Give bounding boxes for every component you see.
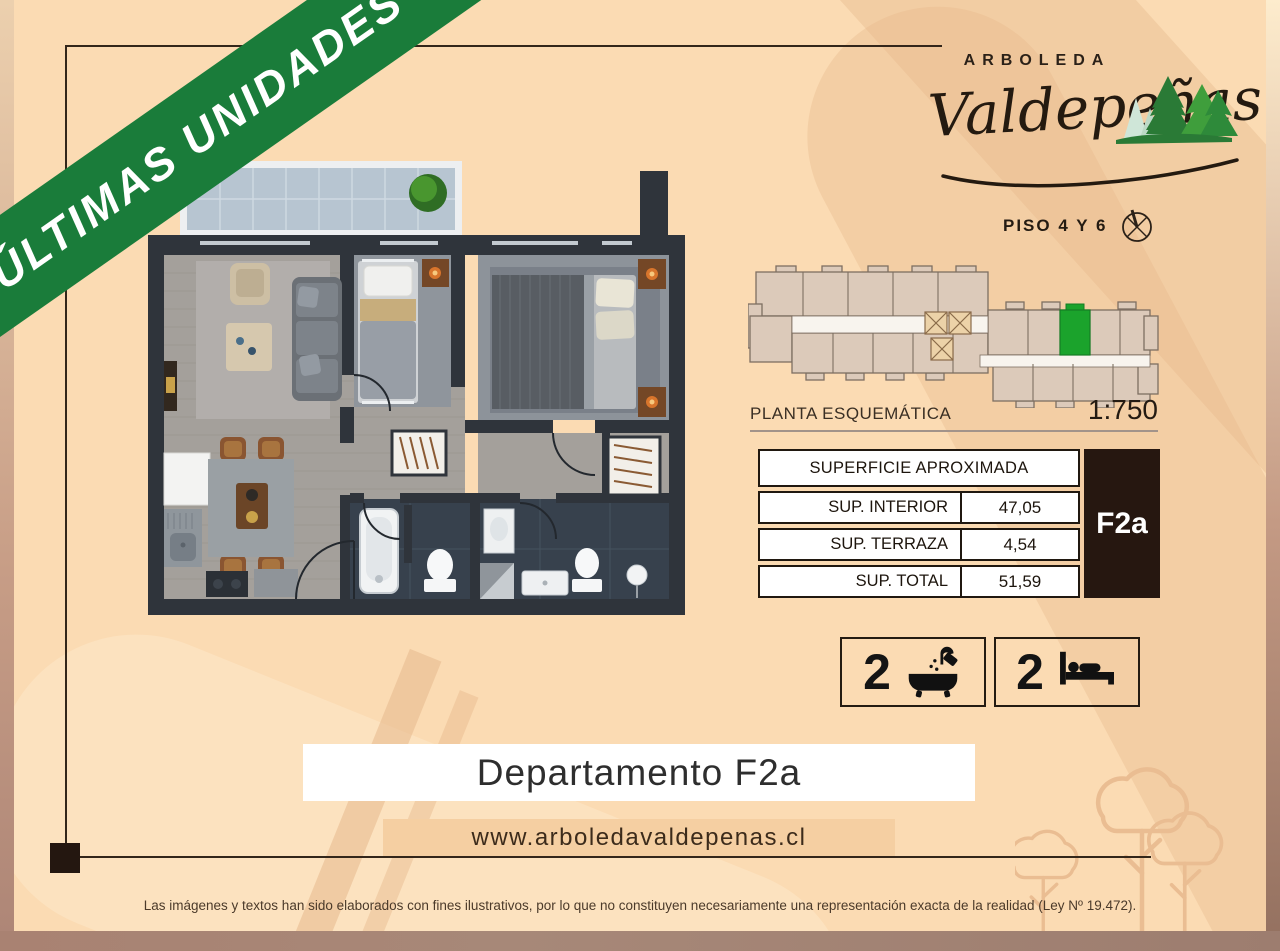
schematic-scale: 1:750 [1030,394,1158,426]
bedrooms-feature: 2 [994,637,1140,707]
schematic-label: PLANTA ESQUEMÁTICA [750,404,951,424]
row-value: 47,05 [962,493,1078,522]
table-row: SUP. TERRAZA 4,54 [758,528,1080,561]
row-label: SUP. TERRAZA [760,530,962,559]
disclaimer-text: Las imágenes y textos han sido elaborado… [0,898,1280,913]
frame-line-left [65,45,67,845]
schematic-highlighted-unit [1060,304,1090,355]
row-value: 51,59 [962,567,1078,596]
frame-line-top [65,45,942,47]
table-row: SUP. INTERIOR 47,05 [758,491,1080,524]
bathroom-count: 2 [863,647,891,697]
frame-corner-square [50,843,80,873]
area-table: SUPERFICIE APROXIMADA SUP. INTERIOR 47,0… [758,449,1160,598]
bathrooms-feature: 2 [840,637,986,707]
divider-line-bottom [80,856,1151,858]
page-edge-right [1266,0,1280,951]
apartment-title: Departamento F2a [477,752,802,794]
bedroom-count: 2 [1016,647,1044,697]
row-label: SUP. TOTAL [760,567,962,596]
brand-name-top: ARBOLEDA [952,52,1122,70]
floor-plan-render [140,155,685,620]
area-table-header: SUPERFICIE APROXIMADA [758,449,1080,487]
website-band: www.arboledavaldepenas.cl [383,819,895,856]
brand-underline-swash [935,150,1245,200]
bed-icon [1056,646,1118,698]
compass-icon [1116,206,1156,246]
flyer-page: ÚLTIMAS UNIDADES ARBOLEDA Valdepeñas PIS… [0,0,1280,951]
website-url: www.arboledavaldepenas.cl [471,824,806,852]
row-value: 4,54 [962,530,1078,559]
unit-code-badge: F2a [1084,449,1160,598]
page-edge-bottom [0,931,1280,951]
apartment-title-box: Departamento F2a [303,744,975,801]
table-row: SUP. TOTAL 51,59 [758,565,1080,598]
schematic-underline [750,430,1158,432]
floor-info-label: PISO 4 Y 6 [1003,216,1107,236]
page-edge-left [0,0,14,951]
row-label: SUP. INTERIOR [760,493,962,522]
brand-trees-icon [1106,64,1240,152]
schematic-plan [748,256,1160,408]
bathtub-icon [903,644,963,700]
